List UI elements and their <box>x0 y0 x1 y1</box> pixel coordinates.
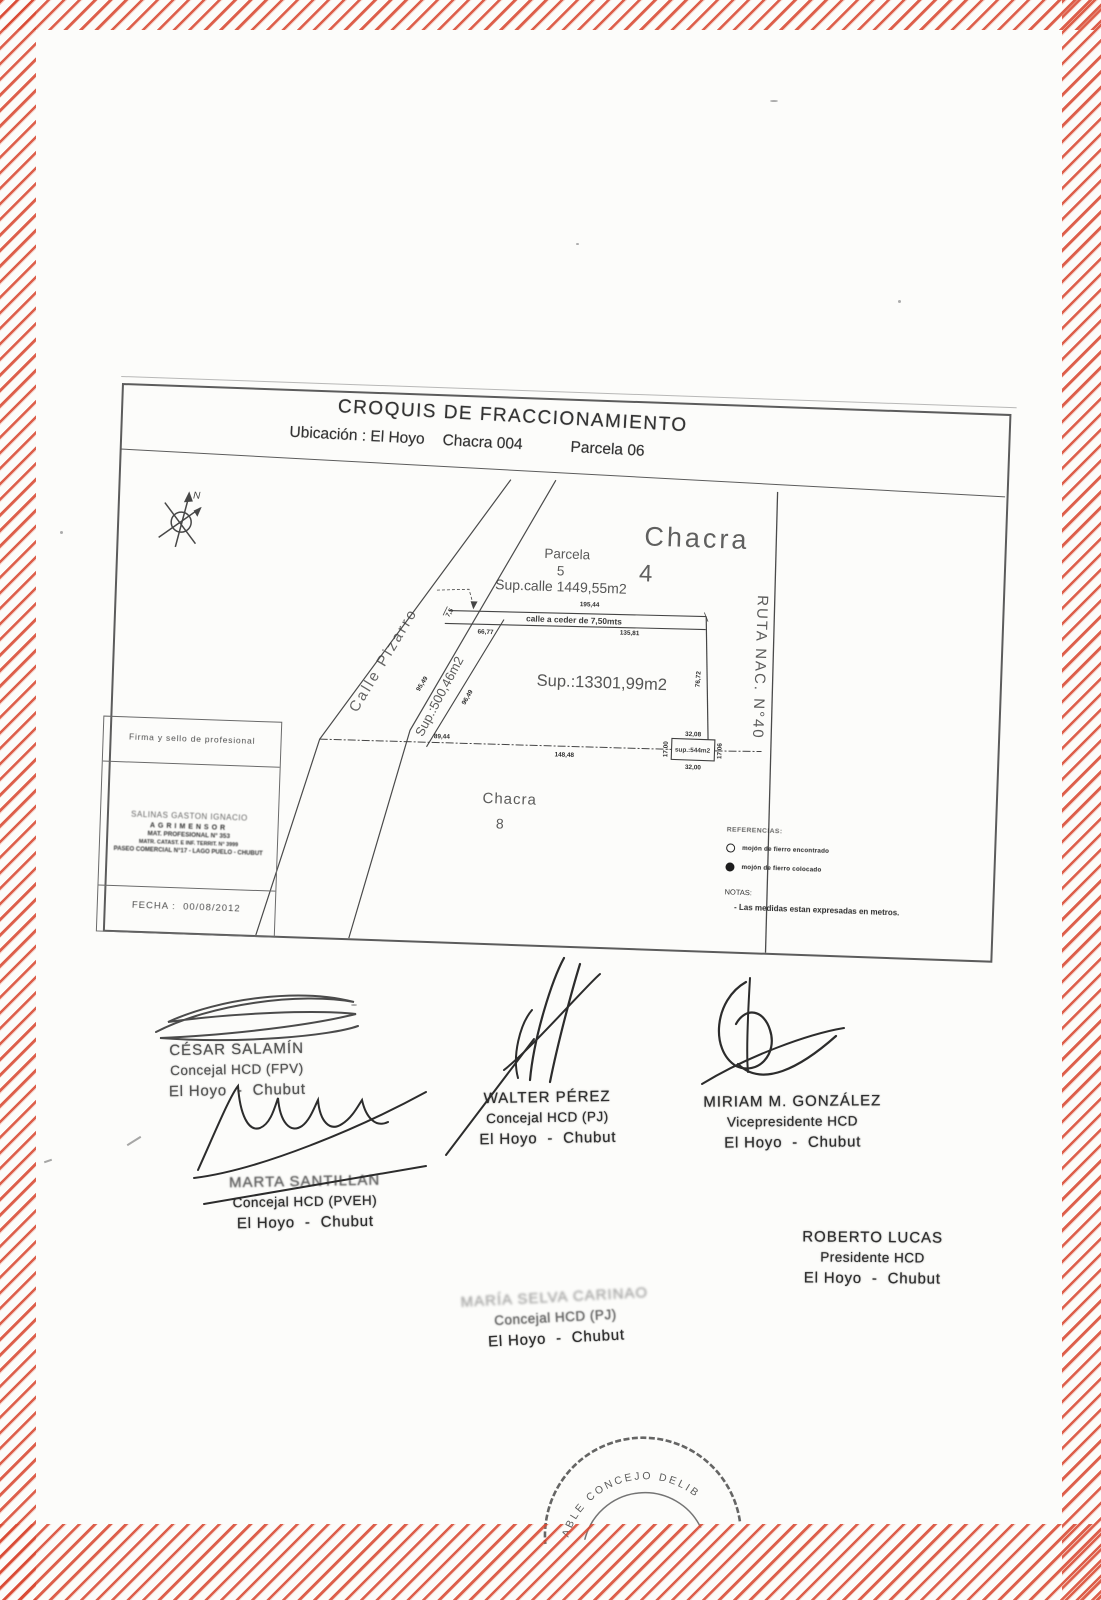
dim-square-right: 17,06 <box>716 743 724 760</box>
dim-square-bottom: 32,00 <box>685 764 702 772</box>
scan-speck <box>898 300 901 303</box>
references-box: REFERENCIAS: mojón de fierro encontrado … <box>724 826 947 919</box>
street-name-label: Calle Pizarro <box>346 605 422 715</box>
divider <box>103 761 280 768</box>
plan-frame: CROQUIS DE FRACCIONAMIENTO Ubicación : E… <box>103 383 1012 963</box>
scan-pen-tick <box>44 1159 52 1164</box>
signer-role: Presidente HCD <box>775 1247 970 1269</box>
scan-speck <box>770 100 778 102</box>
professional-box: Firma y sello de profesional SALINAS GAS… <box>96 716 282 938</box>
scan-speck <box>576 243 579 245</box>
professional-box-header: Firma y sello de profesional <box>104 731 281 747</box>
reference-item: mojón de fierro colocado <box>725 862 945 879</box>
date-field: FECHA : 00/08/2012 <box>98 898 275 915</box>
dim-top-left: 66,77 <box>477 629 494 637</box>
scan-pen-tick <box>127 1136 142 1146</box>
north-compass-icon: N <box>158 489 202 547</box>
stamp-maria-carinao: MARÍA SELVA CARINAO Concejal HCD (PJ) El… <box>447 1282 665 1355</box>
stamp-miriam-gonzalez: MIRIAM M. GONZÁLEZ Vicepresidente HCD El… <box>685 1091 901 1155</box>
parcel-544: 32,08 32,00 17,00 17,06 sup.:544m2 <box>662 730 724 772</box>
reference-label: mojón de fierro encontrado <box>742 845 829 855</box>
signer-name: ROBERTO LUCAS <box>775 1227 970 1249</box>
signature-cesar-salamin <box>150 988 365 1046</box>
scan-speck <box>60 531 63 534</box>
stamp-roberto-lucas: ROBERTO LUCAS Presidente HCD El Hoyo - C… <box>775 1227 971 1291</box>
dim-side-a: 95,49 <box>415 675 430 693</box>
parcela5-number: 5 <box>557 563 565 578</box>
square-area-label: sup.:544m2 <box>675 747 711 755</box>
scan-border-left <box>0 0 36 1600</box>
dim-square-left: 17,00 <box>662 741 670 758</box>
signer-role: Vicepresidente HCD <box>685 1111 900 1133</box>
signer-place: El Hoyo - Chubut <box>205 1210 405 1235</box>
dim-square-top: 32,08 <box>685 731 702 739</box>
dim-bottom-edge: 148,48 <box>554 751 574 759</box>
main-area-label: Sup.:13301,99m2 <box>536 672 667 695</box>
surveyor-stamp: SALINAS GASTON IGNACIO AGRIMENSOR MAT. P… <box>100 809 278 859</box>
signer-place: El Hoyo - Chubut <box>685 1131 900 1155</box>
chacra4-word: Chacra <box>644 521 750 555</box>
signer-name: MIRIAM M. GONZÁLEZ <box>685 1091 900 1113</box>
signature-miriam-gonzalez <box>688 972 853 1092</box>
parcela5-word: Parcela <box>544 546 591 563</box>
divider <box>98 884 275 891</box>
signer-place: El Hoyo - Chubut <box>775 1267 970 1291</box>
sup-calle-label: Sup.calle 1449,55m2 <box>495 576 627 597</box>
scan-border-right <box>1062 0 1101 1600</box>
dim-bottom-left: 89,44 <box>434 733 451 741</box>
stamp-cesar-salamin: CÉSAR SALAMÍN Concejal HCD (FPV) El Hoyo… <box>136 1038 337 1103</box>
scanned-document-page: CROQUIS DE FRACCIONAMIENTO Ubicación : E… <box>0 0 1101 1600</box>
dim-top-total: 195,44 <box>580 601 600 609</box>
chacra4-number: 4 <box>639 560 653 587</box>
signer-place: El Hoyo - Chubut <box>137 1078 337 1103</box>
filled-circle-icon <box>725 862 734 871</box>
signer-role: Concejal HCD (PVEH) <box>205 1190 405 1213</box>
dim-top-right: 135,81 <box>620 630 640 638</box>
scan-border-top <box>0 0 1101 30</box>
council-round-stamp: ABLE CONCEJO DELIB <box>507 1411 767 1547</box>
dim-side-b: 96,49 <box>461 688 475 706</box>
stamp-marta-santillan: MARTA SANTILLAN Concejal HCD (PVEH) El H… <box>204 1170 405 1235</box>
reference-label: mojón de fierro colocado <box>741 864 821 874</box>
north-label: N <box>193 491 201 502</box>
route-name-label: RUTA NAC. N°40 <box>749 595 771 740</box>
stamp-walter-perez: WALTER PÉREZ Concejal HCD (PJ) El Hoyo -… <box>454 1086 640 1151</box>
chacra8-word: Chacra <box>482 790 537 809</box>
stamp-arc-text: ABLE CONCEJO DELIB <box>554 1464 706 1540</box>
signer-name: MARTA SANTILLAN <box>204 1170 404 1193</box>
notes-title: NOTAS: <box>724 887 944 904</box>
open-circle-icon <box>726 843 735 852</box>
dim-right-edge: 76,72 <box>694 671 702 688</box>
reference-item: mojón de fierro encontrado <box>726 843 946 860</box>
street-calle-pizarro <box>256 470 556 945</box>
signer-place: El Hoyo - Chubut <box>455 1126 640 1151</box>
calle-ceder-label: calle a ceder de 7,50mts <box>526 613 623 626</box>
chacra8-number: 8 <box>496 815 505 831</box>
